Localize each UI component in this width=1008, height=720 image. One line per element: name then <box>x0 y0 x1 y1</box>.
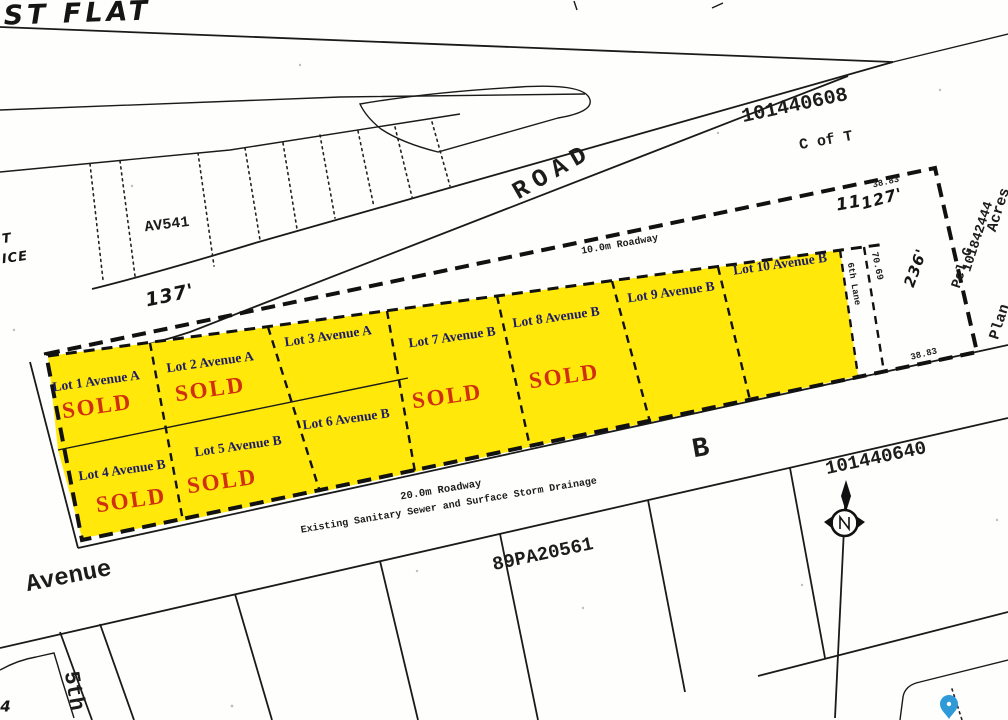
south-parcel-dividers <box>235 468 825 720</box>
fifth-street-label: 5th <box>59 670 88 713</box>
nw-parcel-dividers <box>90 122 450 280</box>
handwritten-t-fragment: T <box>1 232 13 246</box>
plat-map: AST FLAT T ICE 137' 11 127' 236' 4 ROAD … <box>0 0 1008 720</box>
top-tick-2 <box>712 3 723 8</box>
fifth-street-east-edge <box>100 624 134 720</box>
lower-road-line <box>758 612 1008 676</box>
nw-strip-lower-line <box>0 114 460 172</box>
handwritten-corner-fragment: 4 <box>0 700 11 715</box>
plat-linework <box>0 0 1008 720</box>
north-arrow-icon <box>824 480 865 718</box>
north-fence-line <box>0 27 893 62</box>
handwritten-ice-fragment: ICE <box>1 250 29 267</box>
map-pin-icon <box>940 695 958 719</box>
nw-strip-upper-line <box>0 94 585 110</box>
top-tick-1 <box>574 1 577 10</box>
north-east-line <box>893 34 1008 62</box>
handwritten-flat-label: AST FLAT <box>0 0 152 31</box>
